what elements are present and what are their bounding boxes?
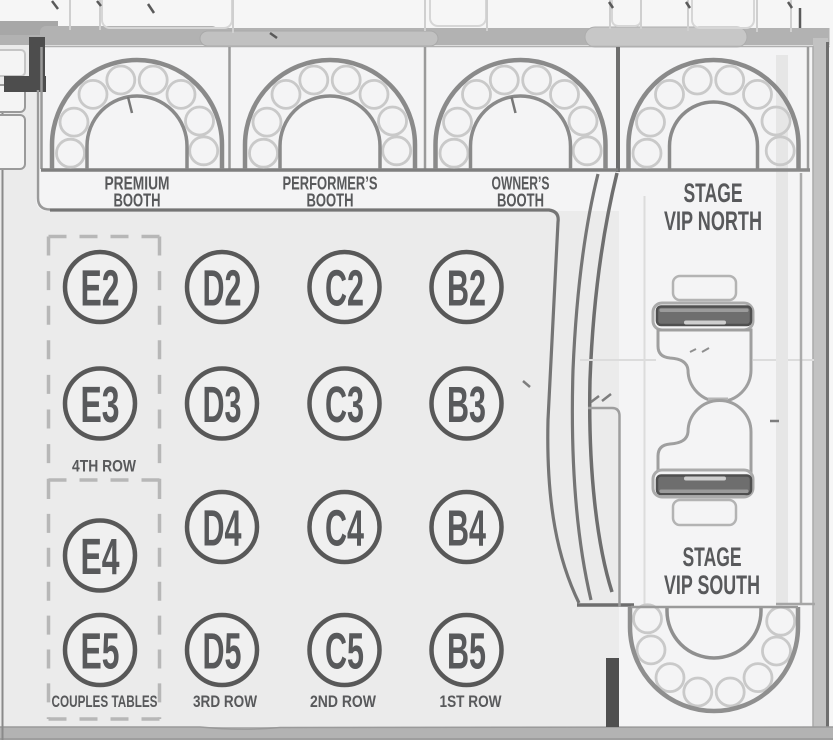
svg-text:COUPLES TABLES: COUPLES TABLES: [52, 692, 158, 711]
svg-text:B4: B4: [447, 500, 486, 557]
svg-text:1ST ROW: 1ST ROW: [440, 692, 503, 711]
svg-text:VIP SOUTH: VIP SOUTH: [664, 570, 760, 600]
svg-text:C4: C4: [325, 500, 364, 557]
svg-text:E4: E4: [81, 528, 120, 585]
svg-text:E5: E5: [81, 623, 120, 680]
svg-text:C3: C3: [325, 376, 364, 433]
svg-text:BOOTH: BOOTH: [307, 190, 354, 211]
svg-text:E2: E2: [81, 260, 120, 317]
svg-text:C2: C2: [325, 260, 364, 317]
svg-text:BOOTH: BOOTH: [497, 190, 544, 211]
svg-text:D4: D4: [203, 500, 242, 557]
svg-text:STAGE: STAGE: [683, 542, 742, 572]
svg-text:B3: B3: [447, 376, 486, 433]
svg-text:D3: D3: [203, 376, 242, 433]
svg-text:2ND ROW: 2ND ROW: [310, 692, 377, 711]
svg-text:4TH ROW: 4TH ROW: [72, 457, 137, 476]
svg-text:B2: B2: [447, 260, 486, 317]
svg-text:E3: E3: [81, 376, 120, 433]
svg-text:D5: D5: [203, 623, 242, 680]
svg-text:STAGE: STAGE: [684, 178, 743, 208]
svg-text:C5: C5: [325, 623, 364, 680]
svg-text:B5: B5: [447, 623, 486, 680]
svg-text:3RD ROW: 3RD ROW: [193, 692, 258, 711]
svg-text:BOOTH: BOOTH: [114, 190, 161, 211]
svg-text:D2: D2: [203, 260, 242, 317]
svg-text:VIP NORTH: VIP NORTH: [664, 206, 762, 236]
